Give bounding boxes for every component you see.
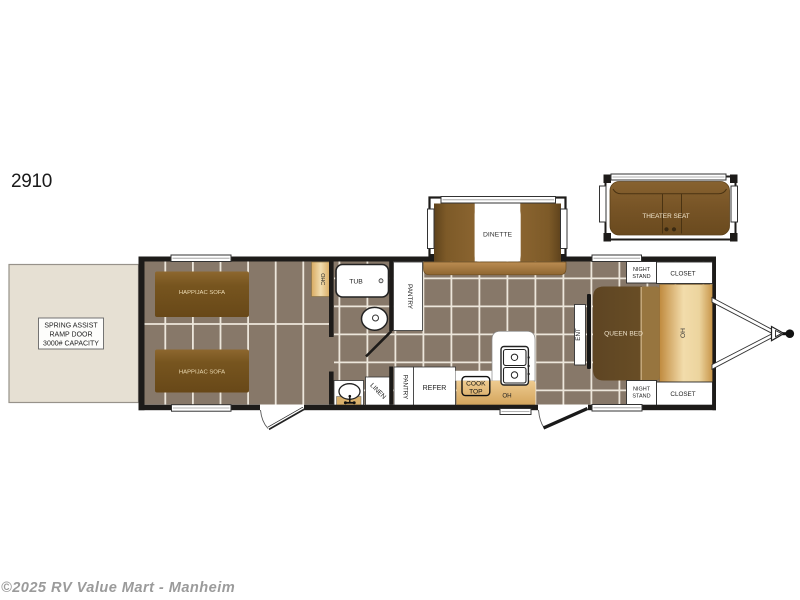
svg-text:COOK: COOK [466,380,486,387]
svg-text:OH: OH [680,328,687,338]
svg-text:OHC: OHC [319,273,325,285]
svg-text:NIGHT: NIGHT [633,387,651,393]
svg-text:REFER: REFER [423,385,447,392]
svg-text:TUB: TUB [349,279,363,286]
svg-text:TOP: TOP [469,388,483,395]
svg-text:©2025 RV Value Mart - Manheim: ©2025 RV Value Mart - Manheim [1,580,235,596]
svg-text:HAPPIJAC SOFA: HAPPIJAC SOFA [179,290,225,296]
svg-text:STAND: STAND [632,394,650,400]
svg-text:QUEEN BED: QUEEN BED [604,331,643,338]
svg-text:3000# CAPACITY: 3000# CAPACITY [43,341,99,348]
svg-text:PANTRY: PANTRY [406,284,413,310]
svg-text:2910: 2910 [11,171,52,192]
svg-text:NIGHT: NIGHT [633,267,651,273]
svg-text:CLOSET: CLOSET [670,271,695,278]
svg-text:RAMP DOOR: RAMP DOOR [49,332,92,339]
svg-text:SPRING ASSIST: SPRING ASSIST [44,323,98,330]
svg-text:STAND: STAND [632,274,650,280]
svg-text:DINETTE: DINETTE [483,232,513,239]
svg-text:ENT: ENT [575,328,582,341]
svg-text:OH: OH [502,393,511,400]
svg-text:HAPPIJAC SOFA: HAPPIJAC SOFA [179,370,225,376]
svg-text:PANTRY: PANTRY [402,375,409,400]
svg-text:THEATER SEAT: THEATER SEAT [642,213,689,220]
svg-text:CLOSET: CLOSET [670,391,695,398]
